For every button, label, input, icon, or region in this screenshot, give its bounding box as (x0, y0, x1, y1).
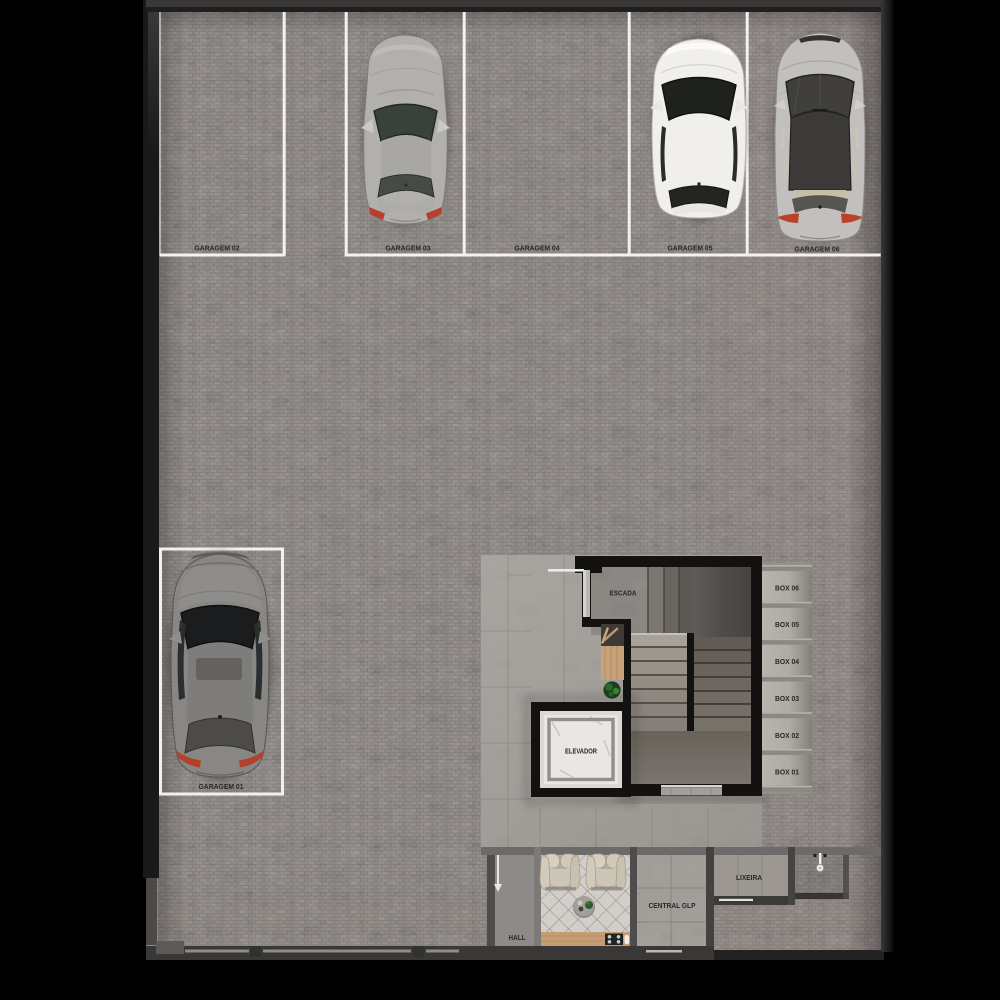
svg-text:BOX 03: BOX 03 (775, 696, 799, 703)
svg-text:CENTRAL GLP: CENTRAL GLP (649, 901, 696, 910)
svg-text:GARAGEM 05: GARAGEM 05 (668, 244, 713, 253)
svg-text:LIXEIRA: LIXEIRA (736, 873, 762, 882)
svg-text:GARAGEM 03: GARAGEM 03 (386, 244, 431, 253)
svg-text:GARAGEM 04: GARAGEM 04 (515, 244, 561, 253)
svg-text:BOX 04: BOX 04 (775, 659, 799, 666)
svg-text:GARAGEM 02: GARAGEM 02 (195, 244, 240, 253)
svg-text:BOX 02: BOX 02 (775, 733, 799, 740)
svg-text:BOX 01: BOX 01 (775, 770, 799, 777)
svg-text:GARAGEM 06: GARAGEM 06 (795, 245, 840, 254)
svg-text:BOX 06: BOX 06 (775, 586, 799, 593)
svg-text:GARAGEM 01: GARAGEM 01 (199, 782, 244, 791)
svg-text:ESCADA: ESCADA (610, 589, 637, 598)
svg-text:HALL: HALL (509, 933, 527, 942)
svg-text:BOX 05: BOX 05 (775, 622, 799, 629)
svg-text:ELEVADOR: ELEVADOR (565, 749, 597, 756)
